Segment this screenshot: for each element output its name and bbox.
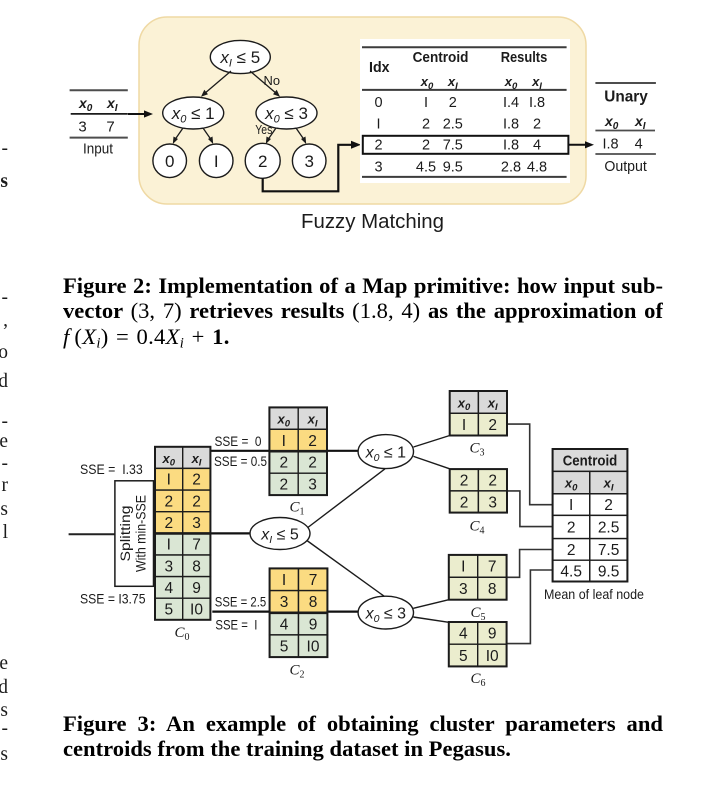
svg-text:Yes: Yes (255, 123, 272, 137)
svg-text:xI ≤ 5: xI ≤ 5 (260, 527, 299, 546)
svg-text:2: 2 (460, 473, 469, 490)
svg-text:3: 3 (488, 494, 497, 511)
svg-text:2: 2 (192, 493, 201, 510)
svg-text:9.5: 9.5 (443, 159, 463, 175)
svg-text:4.5: 4.5 (560, 563, 582, 580)
svg-text:2: 2 (488, 473, 497, 490)
svg-text:7: 7 (309, 572, 318, 589)
svg-text:4.5: 4.5 (416, 159, 436, 175)
svg-text:7.5: 7.5 (598, 542, 620, 559)
svg-text:8: 8 (488, 581, 497, 598)
svg-text:I: I (461, 559, 465, 576)
svg-text:SSE = 2.5: SSE = 2.5 (215, 594, 267, 610)
svg-text:3: 3 (164, 558, 173, 575)
svg-text:I0: I0 (486, 648, 499, 665)
svg-text:SSE = 0: SSE = 0 (215, 433, 262, 449)
svg-text:3: 3 (78, 119, 86, 136)
svg-text:7: 7 (192, 537, 201, 554)
svg-text:I: I (282, 572, 286, 589)
svg-text:Mean of leaf node: Mean of leaf node (544, 587, 644, 602)
svg-text:Centroid: Centroid (563, 453, 618, 470)
svg-text:C1: C1 (289, 500, 304, 518)
svg-text:I: I (214, 152, 219, 171)
svg-text:2.8: 2.8 (501, 159, 521, 175)
svg-text:I: I (282, 433, 286, 450)
svg-text:2: 2 (488, 417, 497, 434)
svg-text:C3: C3 (469, 441, 484, 459)
svg-text:3: 3 (280, 594, 289, 611)
svg-text:SSE = 0.5: SSE = 0.5 (214, 453, 267, 469)
svg-text:8: 8 (192, 558, 201, 575)
svg-text:Results: Results (501, 50, 548, 66)
svg-text:2: 2 (192, 472, 201, 489)
svg-text:I: I (569, 497, 573, 514)
svg-text:I.4: I.4 (503, 95, 519, 111)
svg-text:2: 2 (258, 152, 267, 171)
svg-text:2.5: 2.5 (443, 116, 463, 132)
svg-text:Output: Output (604, 159, 647, 175)
svg-text:3: 3 (192, 515, 201, 532)
svg-text:5: 5 (164, 602, 173, 619)
svg-text:SSE = I3.75: SSE = I3.75 (80, 591, 146, 607)
svg-text:2: 2 (449, 95, 457, 111)
svg-text:2: 2 (164, 493, 173, 510)
svg-text:9: 9 (192, 580, 201, 597)
svg-text:x0 ≤ 1: x0 ≤ 1 (171, 104, 215, 126)
svg-text:2: 2 (164, 515, 173, 532)
svg-text:3: 3 (304, 152, 313, 171)
svg-text:3: 3 (459, 581, 468, 598)
svg-text:I.8: I.8 (503, 137, 519, 153)
svg-text:Idx: Idx (369, 60, 390, 76)
svg-text:I: I (462, 417, 466, 434)
svg-text:2: 2 (422, 116, 430, 132)
svg-text:2: 2 (567, 520, 576, 537)
svg-text:7: 7 (488, 559, 497, 576)
svg-text:2: 2 (604, 497, 613, 514)
svg-text:Fuzzy Matching: Fuzzy Matching (301, 210, 444, 233)
svg-text:C6: C6 (470, 671, 485, 689)
svg-text:Input: Input (83, 141, 113, 157)
svg-text:xI: xI (106, 95, 118, 114)
svg-text:9: 9 (488, 626, 497, 643)
svg-text:0: 0 (165, 152, 174, 171)
svg-text:2: 2 (279, 455, 288, 472)
svg-text:4: 4 (164, 580, 173, 597)
svg-text:I0: I0 (190, 602, 203, 619)
svg-text:xI ≤ 5: xI ≤ 5 (219, 48, 260, 70)
svg-text:I: I (376, 116, 380, 132)
svg-text:3: 3 (374, 159, 382, 175)
svg-text:4.8: 4.8 (527, 159, 547, 175)
svg-text:I: I (167, 472, 171, 489)
svg-text:2.5: 2.5 (598, 520, 620, 537)
svg-text:xI: xI (634, 113, 646, 132)
svg-text:I: I (167, 537, 171, 554)
svg-text:I0: I0 (307, 639, 320, 656)
svg-text:7.5: 7.5 (443, 137, 463, 153)
svg-text:2: 2 (279, 477, 288, 494)
svg-text:4: 4 (280, 616, 289, 633)
svg-text:7: 7 (106, 119, 114, 136)
svg-text:x0 ≤ 1: x0 ≤ 1 (365, 445, 407, 464)
svg-text:2: 2 (567, 542, 576, 559)
svg-text:4: 4 (635, 137, 643, 153)
svg-text:I: I (424, 95, 428, 111)
svg-text:SSE = I.33: SSE = I.33 (80, 461, 143, 477)
svg-text:9: 9 (309, 616, 318, 633)
svg-text:x0: x0 (604, 113, 619, 132)
svg-text:I.8: I.8 (602, 137, 618, 153)
svg-text:C5: C5 (470, 605, 485, 623)
svg-text:Unary: Unary (604, 89, 648, 106)
svg-text:x0: x0 (78, 95, 93, 114)
svg-text:C2: C2 (289, 663, 304, 681)
svg-text:5: 5 (459, 648, 468, 665)
svg-text:0: 0 (374, 95, 382, 111)
svg-text:Splitting: Splitting (118, 506, 133, 562)
svg-text:5: 5 (280, 639, 289, 656)
svg-text:2: 2 (533, 116, 541, 132)
svg-text:2: 2 (422, 137, 430, 153)
svg-text:I.8: I.8 (529, 95, 545, 111)
svg-text:9.5: 9.5 (598, 563, 620, 580)
svg-text:4: 4 (459, 626, 468, 643)
svg-text:2: 2 (308, 455, 317, 472)
svg-text:8: 8 (309, 594, 318, 611)
svg-text:With min-SSE: With min-SSE (134, 495, 149, 572)
svg-text:x0 ≤ 3: x0 ≤ 3 (365, 606, 407, 625)
svg-text:No: No (264, 74, 281, 88)
svg-text:I.8: I.8 (503, 116, 519, 132)
svg-text:2: 2 (460, 494, 469, 511)
svg-text:2: 2 (374, 137, 382, 153)
svg-text:3: 3 (308, 477, 317, 494)
svg-text:Centroid: Centroid (413, 50, 469, 66)
svg-text:C4: C4 (469, 519, 484, 537)
svg-text:SSE = I: SSE = I (215, 616, 257, 632)
svg-text:4: 4 (533, 137, 541, 153)
svg-text:C0: C0 (174, 625, 189, 643)
svg-text:2: 2 (308, 433, 317, 450)
